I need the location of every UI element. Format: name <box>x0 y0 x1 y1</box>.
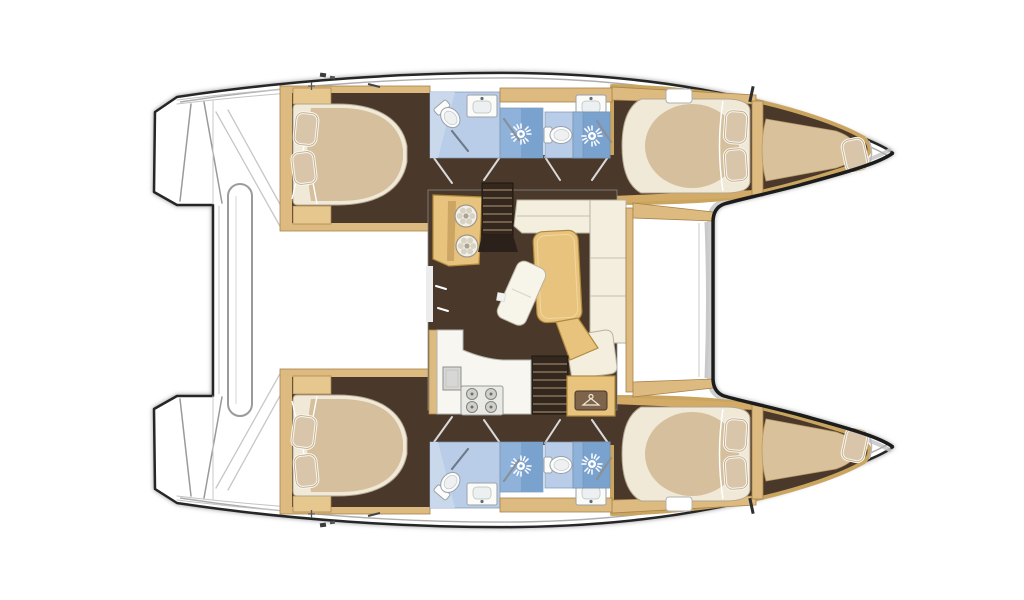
aft-crossbeam-bar <box>228 184 252 416</box>
table-leg-mark <box>496 292 505 301</box>
burner-icon <box>455 205 477 227</box>
stove-4-burner-icon <box>461 386 503 415</box>
companionway-stairs-port <box>478 183 518 252</box>
floor-plan-page: Top-down floor plan of a 4-cabin sailing… <box>0 0 1024 600</box>
fwd-door-gap <box>426 266 433 322</box>
burner-icon <box>456 235 478 257</box>
companionway-stairs-starboard <box>532 356 568 414</box>
galley-sink-unit <box>433 195 482 266</box>
saloon-side-trim <box>626 208 633 392</box>
catamaran-floor-plan: Top-down floor plan of a 4-cabin sailing… <box>0 0 1024 600</box>
wardrobe <box>567 376 615 416</box>
bridge-step-shading <box>706 222 708 378</box>
hanger-plate <box>575 391 607 410</box>
saloon <box>426 183 633 416</box>
